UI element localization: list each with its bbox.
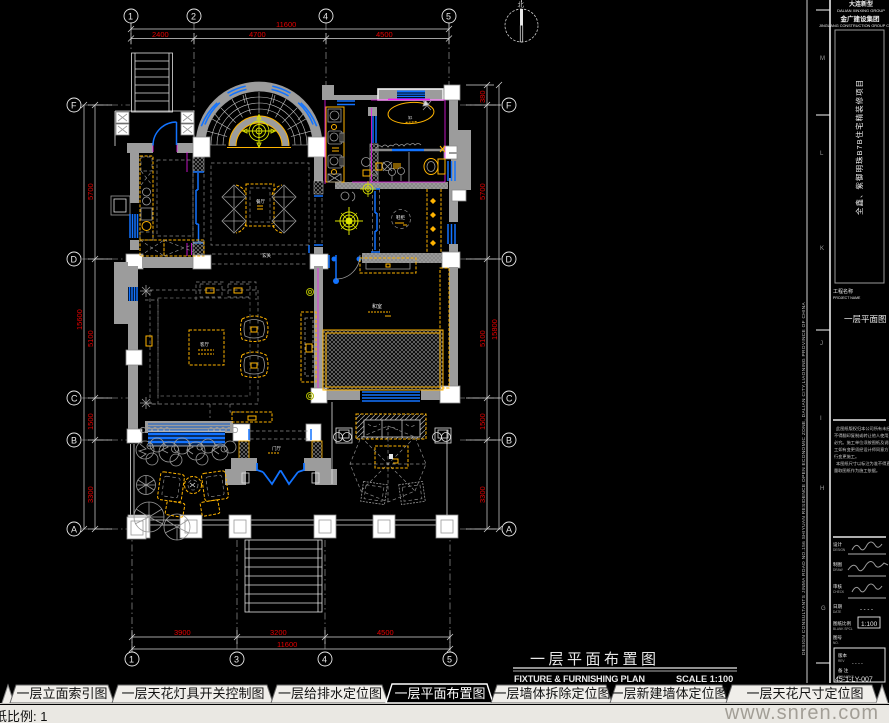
svg-text:设计: 设计	[833, 541, 842, 548]
svg-text:4500: 4500	[377, 628, 394, 637]
svg-text:1500: 1500	[478, 413, 487, 430]
svg-text:DESIGN: DESIGN	[833, 548, 846, 552]
svg-text:工如有变更须经设计师同意方可进: 工如有变更须经设计师同意方可进	[834, 446, 889, 453]
svg-text:DESIGN CONSULTANTS JINMA: DESIGN CONSULTANTS JINMA ROAD NO.156 SHI…	[801, 302, 807, 655]
svg-text:北: 北	[518, 1, 525, 9]
svg-text:餐厅: 餐厅	[256, 198, 265, 205]
svg-text:- - - -: - - - -	[852, 661, 863, 667]
svg-text:门厅: 门厅	[272, 445, 281, 452]
svg-text:量取图纸作为施工依据。: 量取图纸作为施工依据。	[834, 467, 880, 474]
svg-text:K: K	[820, 246, 824, 252]
svg-text:3200: 3200	[270, 628, 287, 637]
svg-text:鞋柜: 鞋柜	[396, 214, 405, 221]
svg-text:和室: 和室	[372, 303, 382, 310]
svg-text:金广建设集团: 金广建设集团	[840, 14, 881, 23]
svg-text:J: J	[820, 341, 823, 347]
svg-text:DATE: DATE	[833, 610, 841, 614]
svg-text:5: 5	[447, 655, 452, 665]
svg-text:4500: 4500	[376, 30, 393, 39]
svg-text:1: 1	[129, 655, 134, 665]
svg-text:全鑫、紫御明珠B7B住宅精装修项目: 全鑫、紫御明珠B7B住宅精装修项目	[854, 79, 864, 215]
svg-text:DRAW: DRAW	[833, 568, 843, 572]
svg-text:A: A	[71, 525, 77, 535]
svg-text:版本: 版本	[838, 652, 847, 659]
svg-text:B: B	[71, 436, 77, 446]
svg-text:15600: 15600	[75, 309, 84, 330]
svg-text:一层墙体拆除定位图: 一层墙体拆除定位图	[493, 686, 610, 701]
svg-text:3300: 3300	[478, 486, 487, 503]
svg-text:审核: 审核	[833, 583, 842, 590]
svg-text:备 注: 备 注	[838, 667, 849, 674]
svg-text:一层平面图: 一层平面图	[844, 314, 887, 324]
svg-text:4: 4	[322, 655, 327, 665]
svg-text:B: B	[506, 436, 512, 446]
svg-text:不得翻印复制或转让他人使用违者: 不得翻印复制或转让他人使用违者	[834, 432, 889, 439]
svg-text:客厅: 客厅	[200, 341, 209, 348]
svg-text:5700: 5700	[86, 183, 95, 200]
svg-text:玄关: 玄关	[262, 252, 271, 259]
svg-text:15800: 15800	[490, 319, 499, 340]
svg-text:G: G	[821, 606, 826, 612]
svg-text:3900: 3900	[174, 628, 191, 637]
svg-text:M: M	[820, 56, 825, 62]
svg-text:图纸比例: 图纸比例	[833, 620, 851, 627]
svg-text:JINGUANG CONSTRUCTION GROUP CO: JINGUANG CONSTRUCTION GROUP CO.,LTD	[819, 24, 889, 28]
svg-text:- - - -: - - - -	[860, 607, 873, 613]
svg-text:2400: 2400	[152, 30, 169, 39]
svg-text:380: 380	[478, 90, 487, 103]
svg-text:BLANK SPCL: BLANK SPCL	[833, 627, 853, 631]
svg-text:大连新型: 大连新型	[849, 0, 873, 8]
svg-text:4: 4	[323, 12, 328, 22]
svg-text:一层平面布置图: 一层平面布置图	[530, 651, 660, 668]
svg-text:5100: 5100	[86, 330, 95, 347]
svg-text:此图纸版权归本公司所有未经许可: 此图纸版权归本公司所有未经许可	[836, 425, 889, 432]
svg-text:必究。施工单位须按图纸及说明施: 必究。施工单位须按图纸及说明施	[834, 439, 889, 446]
svg-text:一层新建墙体定位图: 一层新建墙体定位图	[610, 686, 727, 701]
svg-text:1:100: 1:100	[861, 621, 878, 628]
svg-text:11600: 11600	[276, 20, 296, 29]
svg-text:A: A	[506, 525, 512, 535]
svg-text:本图纸尺寸以标注为准不得直接: 本图纸尺寸以标注为准不得直接	[836, 460, 889, 467]
svg-text:11600: 11600	[277, 640, 297, 649]
svg-text:F: F	[71, 101, 77, 111]
svg-text:一层给排水定位图: 一层给排水定位图	[278, 686, 382, 701]
svg-text:一层天花尺寸定位图: 一层天花尺寸定位图	[746, 686, 863, 701]
svg-text:3: 3	[234, 655, 239, 665]
svg-text:D: D	[506, 255, 513, 265]
svg-text:CHECK: CHECK	[833, 590, 845, 594]
svg-text:C: C	[506, 394, 513, 404]
svg-text:DALIAN XINXING GROUP: DALIAN XINXING GROUP	[837, 8, 885, 13]
svg-text:行变更施工。: 行变更施工。	[834, 453, 859, 460]
svg-text:1500: 1500	[86, 413, 95, 430]
svg-text:一层天花灯具开关控制图: 一层天花灯具开关控制图	[121, 686, 264, 701]
svg-text:5700: 5700	[478, 183, 487, 200]
svg-text:2: 2	[191, 12, 196, 22]
svg-text:REV: REV	[838, 659, 845, 663]
svg-text:D: D	[71, 255, 78, 265]
svg-text:缸: 缸	[408, 114, 412, 120]
svg-text:工程名称: 工程名称	[833, 288, 853, 295]
svg-text:4700: 4700	[249, 30, 266, 39]
svg-text:制图: 制图	[833, 561, 842, 568]
svg-text:一层平面布置图: 一层平面布置图	[394, 686, 485, 701]
svg-text:H: H	[820, 486, 824, 492]
svg-text:3300: 3300	[86, 486, 95, 503]
svg-text:C: C	[71, 394, 78, 404]
svg-text:5: 5	[446, 12, 451, 22]
svg-text:PROJECT NAME: PROJECT NAME	[833, 296, 861, 300]
svg-text:5100: 5100	[478, 330, 487, 347]
svg-text:一层立面索引图: 一层立面索引图	[16, 686, 107, 701]
svg-text:F: F	[506, 101, 512, 111]
svg-text:NO.: NO.	[833, 641, 839, 645]
svg-text:1: 1	[128, 12, 133, 22]
